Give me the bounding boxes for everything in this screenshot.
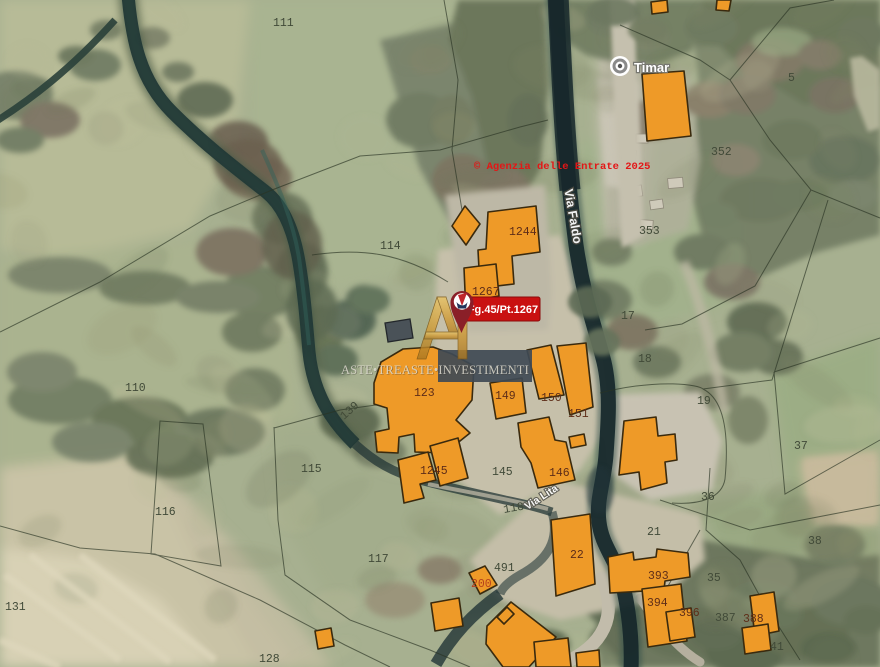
svg-text:491: 491 [494, 562, 515, 575]
svg-text:146: 146 [549, 467, 570, 480]
svg-text:© Agenzia delle Entrate 2025: © Agenzia delle Entrate 2025 [474, 161, 650, 173]
svg-text:128: 128 [259, 653, 280, 666]
svg-text:18: 18 [638, 353, 652, 366]
svg-text:352: 352 [711, 146, 732, 159]
svg-text:150: 150 [541, 392, 562, 405]
svg-text:21: 21 [647, 526, 661, 539]
svg-text:387: 387 [715, 612, 736, 625]
svg-text:123: 123 [414, 387, 435, 400]
svg-text:394: 394 [647, 597, 668, 610]
svg-text:110: 110 [125, 382, 146, 395]
svg-text:131: 131 [5, 601, 26, 614]
svg-text:353: 353 [639, 225, 660, 238]
svg-text:145: 145 [492, 466, 513, 479]
svg-text:37: 37 [794, 440, 808, 453]
svg-text:151: 151 [568, 408, 589, 421]
svg-text:396: 396 [679, 607, 700, 620]
svg-text:ASTE•TREASTE•INVESTIMENTI: ASTE•TREASTE•INVESTIMENTI [341, 363, 529, 377]
svg-text:388: 388 [743, 613, 764, 626]
svg-text:19: 19 [697, 395, 711, 408]
svg-text:5: 5 [788, 72, 795, 85]
svg-text:Fg.45/Pt.1267: Fg.45/Pt.1267 [468, 304, 538, 316]
svg-text:36: 36 [701, 491, 715, 504]
svg-text:38: 38 [808, 535, 822, 548]
svg-text:Timar: Timar [634, 60, 669, 75]
svg-text:149: 149 [495, 390, 516, 403]
svg-text:116: 116 [155, 506, 176, 519]
svg-text:117: 117 [368, 553, 389, 566]
svg-text:200: 200 [471, 578, 492, 591]
svg-text:41: 41 [770, 641, 784, 654]
svg-text:35: 35 [707, 572, 721, 585]
svg-text:1245: 1245 [420, 465, 448, 478]
svg-text:393: 393 [648, 570, 669, 583]
svg-text:1244: 1244 [509, 226, 537, 239]
svg-text:22: 22 [570, 549, 584, 562]
svg-text:17: 17 [621, 310, 635, 323]
svg-text:115: 115 [301, 463, 322, 476]
svg-text:114: 114 [380, 240, 401, 253]
svg-text:111: 111 [273, 17, 294, 30]
